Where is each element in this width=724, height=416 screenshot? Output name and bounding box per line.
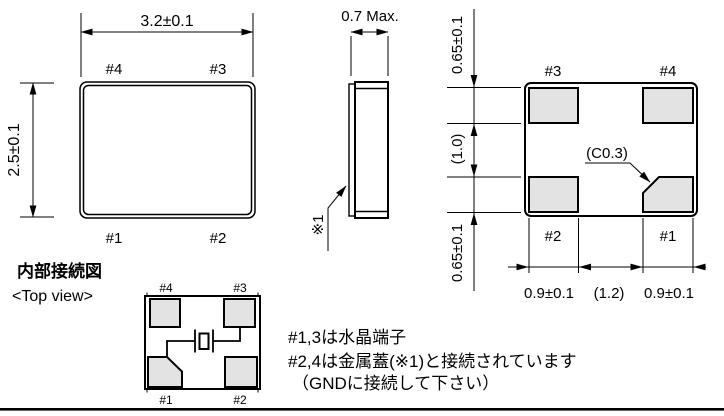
pad-label: #1 bbox=[660, 228, 677, 245]
dimension-label: (1.2) bbox=[594, 285, 625, 302]
pin-label: #2 bbox=[210, 230, 227, 247]
dimension-label: (1.0) bbox=[449, 134, 466, 165]
pin-label: #4 bbox=[159, 281, 173, 295]
bottom-divider bbox=[0, 408, 724, 411]
section-title: 内部接続図 bbox=[17, 261, 102, 281]
pad bbox=[150, 299, 180, 327]
pad bbox=[643, 88, 693, 123]
crystal-symbol bbox=[200, 334, 209, 350]
chamfer-label: (C0.3) bbox=[586, 145, 628, 162]
note-line: （GNDに接続して下さい） bbox=[292, 374, 499, 393]
top-view: 3.2±0.1 2.5±0.1 #4 #3 #1 #2 bbox=[6, 13, 255, 247]
dimension-label: 0.9±0.1 bbox=[524, 285, 574, 302]
notes: #1,3は水晶端子 #2,4は金属蓋(※1)と接続されています （GNDに接続し… bbox=[288, 328, 577, 393]
pad-label: #2 bbox=[545, 228, 562, 245]
pin-label: #4 bbox=[106, 61, 123, 78]
pad bbox=[225, 357, 257, 387]
note-line: #2,4は金属蓋(※1)と接続されています bbox=[288, 352, 577, 371]
pin-label: #1 bbox=[159, 393, 173, 407]
lid-ref-label: ※1 bbox=[310, 215, 327, 236]
package-body-side bbox=[355, 82, 388, 218]
pin-label: #3 bbox=[233, 281, 247, 295]
lid-leader-line bbox=[328, 186, 346, 251]
pad bbox=[529, 177, 578, 212]
pad bbox=[529, 88, 578, 123]
pin-label: #2 bbox=[233, 393, 247, 407]
pad-label: #3 bbox=[545, 63, 562, 80]
dimension-height-label: 2.5±0.1 bbox=[6, 123, 23, 176]
pin-label: #3 bbox=[210, 61, 227, 78]
package-outline bbox=[80, 82, 255, 218]
internal-connection-diagram: 内部接続図 <Top view> #4 #3 #1 #2 bbox=[12, 261, 260, 407]
package-dimension-drawing: 3.2±0.1 2.5±0.1 #4 #3 #1 #2 0.7 Max. ※1 … bbox=[0, 0, 724, 416]
dimension-label: 0.65±0.1 bbox=[449, 224, 466, 282]
bottom-view: #3 #4 #2 #1 (C0.3) 0.65±0.1 (1.0) 0.65±0… bbox=[447, 9, 706, 302]
section-subtitle: <Top view> bbox=[12, 288, 93, 305]
pin-label: #1 bbox=[106, 230, 123, 247]
note-line: #1,3は水晶端子 bbox=[288, 328, 406, 347]
side-view: 0.7 Max. ※1 bbox=[310, 8, 399, 251]
dimension-width-label: 3.2±0.1 bbox=[140, 13, 193, 30]
pad bbox=[224, 299, 255, 327]
technical-drawing-svg: 3.2±0.1 2.5±0.1 #4 #3 #1 #2 0.7 Max. ※1 … bbox=[0, 0, 724, 416]
dimension-label: 0.65±0.1 bbox=[449, 16, 466, 74]
pad-label: #4 bbox=[660, 63, 677, 80]
dimension-thickness-label: 0.7 Max. bbox=[341, 8, 399, 25]
dimension-label: 0.9±0.1 bbox=[644, 285, 694, 302]
